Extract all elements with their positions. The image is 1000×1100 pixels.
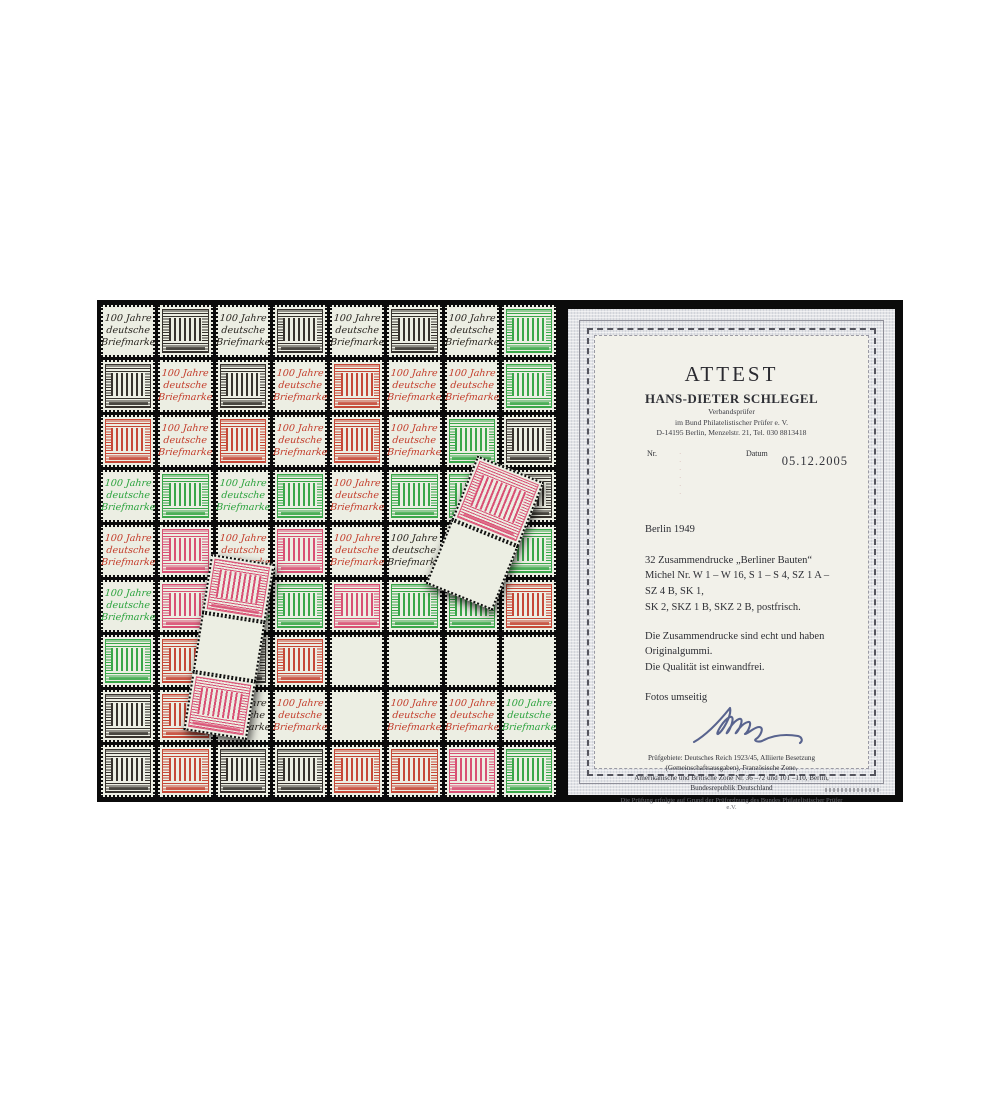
stamp [502,580,556,632]
stamp [502,745,556,797]
stamp-label-line: Briefmarke [502,722,557,734]
stamp-label: 100 JahredeutscheBriefmarke [387,415,441,467]
stamp [216,360,270,412]
verdict-line: Die Zusammendrucke sind echt und haben O… [645,629,840,661]
stamp-label-line: Briefmarke [272,447,327,459]
stamp-label-line: 100 Jahre [387,423,442,435]
stamp-label-line: Briefmarke [444,337,499,349]
stamp-engraving [105,749,151,793]
item-heading: Berlin 1949 [615,522,848,538]
stamp [216,415,270,467]
stamp-label-line: deutsche [215,325,270,337]
stamp-label-line: 100 Jahre [158,368,213,380]
stamp [273,745,327,797]
stamp-label-line: 100 Jahre [502,698,557,710]
stamp [330,745,384,797]
nr-label: Nr. [647,449,657,458]
stamp-label-line: Briefmarke [215,337,270,349]
stamp [101,360,155,412]
certificate-outer-frame: ATTEST HANS-DIETER SCHLEGEL Verbandsprüf… [579,320,884,784]
stamp [445,745,499,797]
stamp [502,415,556,467]
stamp-label: 100 JahredeutscheBriefmarke [101,305,155,357]
signature-ink [690,696,822,748]
stamp-label: 100 JahredeutscheBriefmarke [101,470,155,522]
stamp-label-line: deutsche [444,710,499,722]
stamp-engraving [105,694,151,738]
stamp-label-line: Briefmarke [387,447,442,459]
stamp-engraving [277,309,323,353]
stamp-label-line: 100 Jahre [272,368,327,380]
stamp-label: 100 JahredeutscheBriefmarke [101,525,155,577]
gutter-blank [193,613,265,682]
stamp [273,470,327,522]
stamp-label-line: 100 Jahre [387,368,442,380]
stamp-label-line: 100 Jahre [215,313,270,325]
gutter-blank [445,635,499,687]
stamp-label-line: deutsche [330,325,385,337]
certificate-title: ATTEST [615,362,848,387]
stamp-label-line: deutsche [100,545,155,557]
stamp [158,525,212,577]
stamp-label-line: Briefmarke [272,392,327,404]
stamp-label-line: Briefmarke [330,337,385,349]
stamp-sheet-photo: 100 JahredeutscheBriefmarke100 Jahredeut… [97,300,557,802]
stamp [158,305,212,357]
stamp [183,671,255,740]
stamp-engraving [506,584,552,628]
stamp-label-line: Briefmarke [100,557,155,569]
certificate-number-faint: · · · · · · [679,449,688,498]
stamp-engraving [105,364,151,408]
stamp [387,305,441,357]
stamp-engraving [220,419,266,463]
stamp-label: 100 JahredeutscheBriefmarke [216,470,270,522]
examiner-name: HANS-DIETER SCHLEGEL [615,391,848,407]
stamp-label-line: 100 Jahre [444,368,499,380]
stamp-label-line: deutsche [330,490,385,502]
stamp [273,525,327,577]
stamp-engraving [162,474,208,518]
stamp-engraving [105,639,151,683]
stamp-label-line: deutsche [387,710,442,722]
stamp [202,554,274,623]
stamp-label-line: 100 Jahre [330,533,385,545]
stamp-label-line: deutsche [387,545,442,557]
stamp-label: 100 JahredeutscheBriefmarke [330,470,384,522]
stamp-label: 100 JahredeutscheBriefmarke [273,690,327,742]
stamp-label-line: 100 Jahre [100,533,155,545]
printer-imprint [825,788,881,792]
certificate-content: ATTEST HANS-DIETER SCHLEGEL Verbandsprüf… [594,335,869,769]
description-line: SK 2, SKZ 1 B, SKZ 2 B, postfrisch. [645,600,840,616]
stamp-label-line: deutsche [272,380,327,392]
examiner-association: im Bund Philatelistischer Prüfer e. V. [615,418,848,429]
examiner-address: D-14195 Berlin, Menzelstr. 21, Tel. 030 … [615,428,848,439]
stamp [502,360,556,412]
stamp [387,580,441,632]
stamp-engraving [506,309,552,353]
datum-label: Datum [746,449,768,458]
stamp-label-line: 100 Jahre [444,698,499,710]
stamp [445,415,499,467]
stamp-engraving [162,529,208,573]
stamp-label-line: deutsche [387,435,442,447]
stamp-engraving [391,584,437,628]
certificate-paper: ATTEST HANS-DIETER SCHLEGEL Verbandsprüf… [568,309,895,795]
stamp [330,360,384,412]
stamp-label-line: Briefmarke [444,392,499,404]
stamp [101,415,155,467]
stamp-engraving [506,749,552,793]
stamp-label-line: Briefmarke [100,502,155,514]
stamp-label: 100 JahredeutscheBriefmarke [158,360,212,412]
stamp-engraving [449,749,495,793]
stamp-label-line: 100 Jahre [387,533,442,545]
stamp [101,745,155,797]
stamp-label-line: Briefmarke [272,722,327,734]
stamp-engraving [391,749,437,793]
stamp-label-line: deutsche [502,710,557,722]
stamp [273,305,327,357]
examiner-role: Verbandsprüfer [615,407,848,418]
stamp [273,580,327,632]
stamp-engraving [506,419,552,463]
stamp [502,305,556,357]
stamp-label-line: Briefmarke [330,557,385,569]
stamp-engraving [162,749,208,793]
stamp-engraving [277,639,323,683]
certificate-photo: ATTEST HANS-DIETER SCHLEGEL Verbandsprüf… [557,300,903,802]
gutter-blank [330,690,384,742]
stamp-label-line: deutsche [330,545,385,557]
stamp-label-line: deutsche [272,710,327,722]
item-description: 32 Zusammendrucke „Berliner Bauten“ Mich… [615,553,848,616]
stamp-engraving [391,309,437,353]
stamp-label: 100 JahredeutscheBriefmarke [273,415,327,467]
number-date-row: Nr. · · · · · · Datum 05.12.2005 [615,449,848,498]
stamp-label-line: deutsche [100,490,155,502]
stamp-engraving [334,364,380,408]
stamp-engraving [334,419,380,463]
stamp-label-line: deutsche [444,380,499,392]
page: 100 JahredeutscheBriefmarke100 Jahredeut… [0,0,1000,1100]
stamp-label-line: 100 Jahre [100,313,155,325]
gutter-blank [330,635,384,687]
stamp-label-line: 100 Jahre [444,313,499,325]
gutter-blank [502,635,556,687]
stamp-label-line: 100 Jahre [158,423,213,435]
footer-line: Prüfgebiete: Deutsches Reich 1923/45, Al… [615,753,848,774]
stamp-label: 100 JahredeutscheBriefmarke [101,580,155,632]
verdict-line: Die Qualität ist einwandfrei. [645,660,840,676]
stamp-engraving [334,749,380,793]
stamp [330,580,384,632]
stamp-engraving [277,474,323,518]
description-line: 32 Zusammendrucke „Berliner Bauten“ [645,553,840,569]
stamp-label-line: Briefmarke [100,337,155,349]
certificate-date: 05.12.2005 [782,454,848,469]
stamp-label-line: deutsche [215,490,270,502]
stamp-label: 100 JahredeutscheBriefmarke [158,415,212,467]
stamp-engraving [449,419,495,463]
stamp-engraving [277,584,323,628]
stamp-label-line: Briefmarke [330,502,385,514]
stamp-engraving [334,584,380,628]
stamp-label-line: Briefmarke [215,502,270,514]
stamp-engraving [391,474,437,518]
stamp-label: 100 JahredeutscheBriefmarke [387,690,441,742]
stamp [387,745,441,797]
certificate-footer: Prüfgebiete: Deutsches Reich 1923/45, Al… [615,753,848,815]
stamp-label-line: 100 Jahre [100,588,155,600]
stamp-engraving [506,364,552,408]
stamp [330,415,384,467]
stamp [273,635,327,687]
stamp-label-line: Briefmarke [387,722,442,734]
stamp-label-line: Briefmarke [100,612,155,624]
stamp-engraving [277,529,323,573]
stamp-label-line: 100 Jahre [215,533,270,545]
stamp-engraving [188,676,251,735]
stamp [158,745,212,797]
stamp-label: 100 JahredeutscheBriefmarke [445,305,499,357]
stamp [101,690,155,742]
stamp-label-line: 100 Jahre [272,698,327,710]
stamp-label: 100 JahredeutscheBriefmarke [445,690,499,742]
stamp-label-line: 100 Jahre [272,423,327,435]
stamp-label: 100 JahredeutscheBriefmarke [273,360,327,412]
stamp-label-line: Briefmarke [387,392,442,404]
stamp-engraving [105,419,151,463]
stamp-label-line: 100 Jahre [330,313,385,325]
stamp-label-line: Briefmarke [158,447,213,459]
stamp-engraving [207,559,270,618]
stamp [101,635,155,687]
gutter-blank [387,635,441,687]
stamp-label-line: deutsche [100,325,155,337]
stamp-label: 100 JahredeutscheBriefmarke [216,305,270,357]
verdict: Die Zusammendrucke sind echt und haben O… [615,629,848,676]
footer-small-print: Die Prüfung erfolgte auf Grund der Prüfo… [615,797,848,811]
stamp-engraving [220,749,266,793]
stamp [158,470,212,522]
stamp [216,745,270,797]
stamp-label-line: 100 Jahre [215,478,270,490]
description-line: Michel Nr. W 1 – W 16, S 1 – S 4, SZ 1 A… [645,568,840,600]
stamp-label-line: Briefmarke [444,722,499,734]
stamp-label: 100 JahredeutscheBriefmarke [387,360,441,412]
stamp-label-line: 100 Jahre [330,478,385,490]
certificate-stitched-frame: ATTEST HANS-DIETER SCHLEGEL Verbandsprüf… [587,328,876,776]
stamp-label-line: 100 Jahre [387,698,442,710]
stamp-label-line: Briefmarke [158,392,213,404]
stamp-label: 100 JahredeutscheBriefmarke [445,360,499,412]
stamp-label-line: deutsche [444,325,499,337]
stamp-label-line: deutsche [100,600,155,612]
signature [690,696,822,753]
auction-lot-photo: 100 JahredeutscheBriefmarke100 Jahredeut… [97,300,903,802]
stamp-label-line: deutsche [387,380,442,392]
stamp-label-line: deutsche [272,435,327,447]
stamp-engraving [162,309,208,353]
stamp-label-line: 100 Jahre [100,478,155,490]
stamp-engraving [220,364,266,408]
stamp [387,470,441,522]
stamp-label-line: deutsche [158,380,213,392]
stamp-label: 100 JahredeutscheBriefmarke [330,525,384,577]
stamp-label: 100 JahredeutscheBriefmarke [330,305,384,357]
stamp-label: 100 JahredeutscheBriefmarke [502,690,556,742]
stamp-label-line: deutsche [158,435,213,447]
footer-line: Amerikanische und Britische Zone Nr. 36 … [615,773,848,794]
stamp-engraving [277,749,323,793]
